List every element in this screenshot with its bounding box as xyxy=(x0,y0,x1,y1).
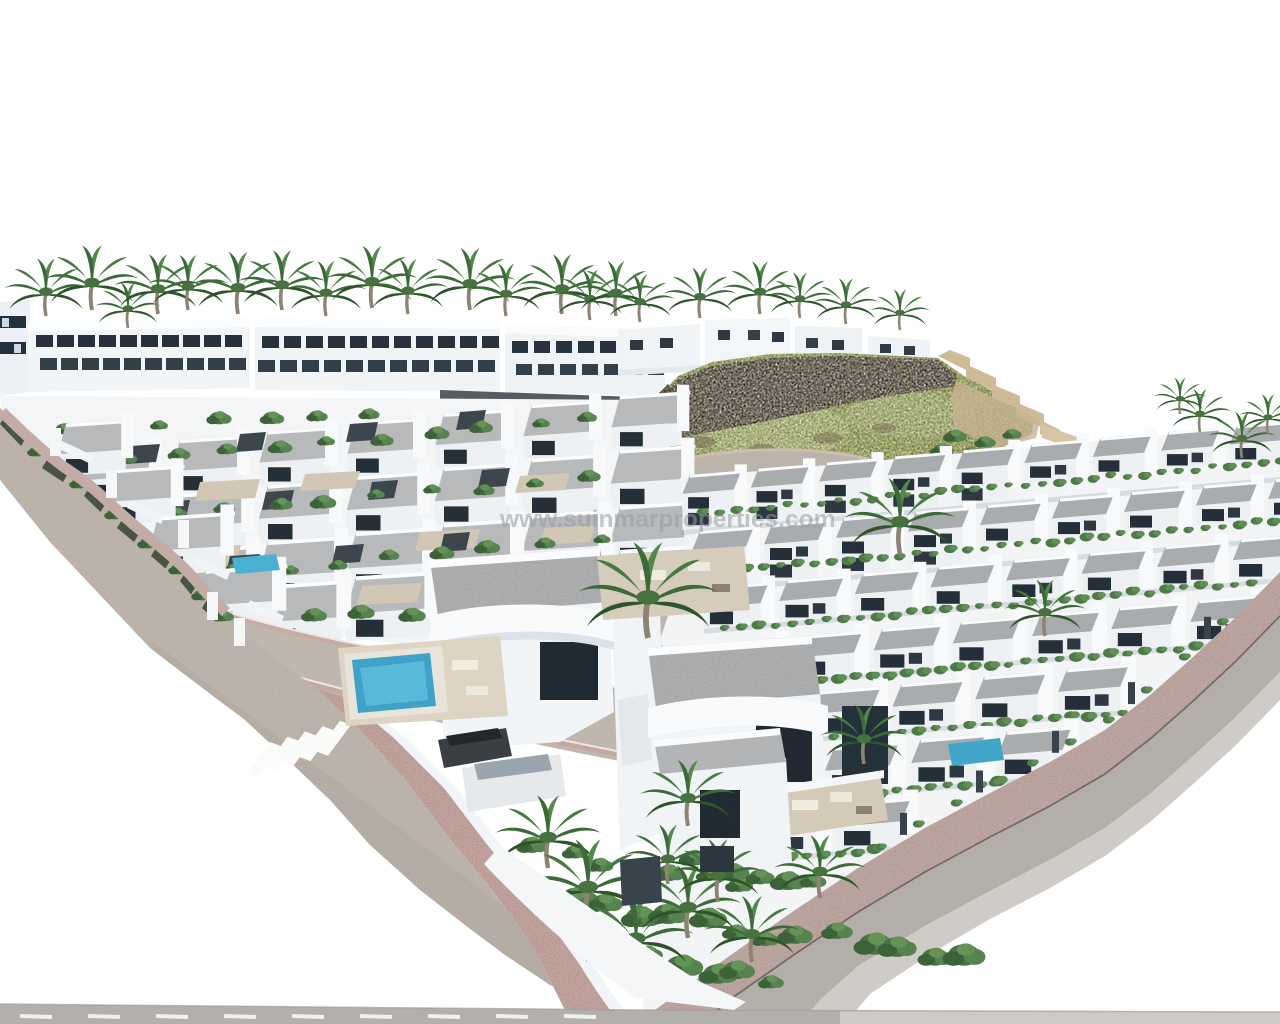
svg-text:www.suinmarproperties.com: www.suinmarproperties.com xyxy=(499,506,835,533)
